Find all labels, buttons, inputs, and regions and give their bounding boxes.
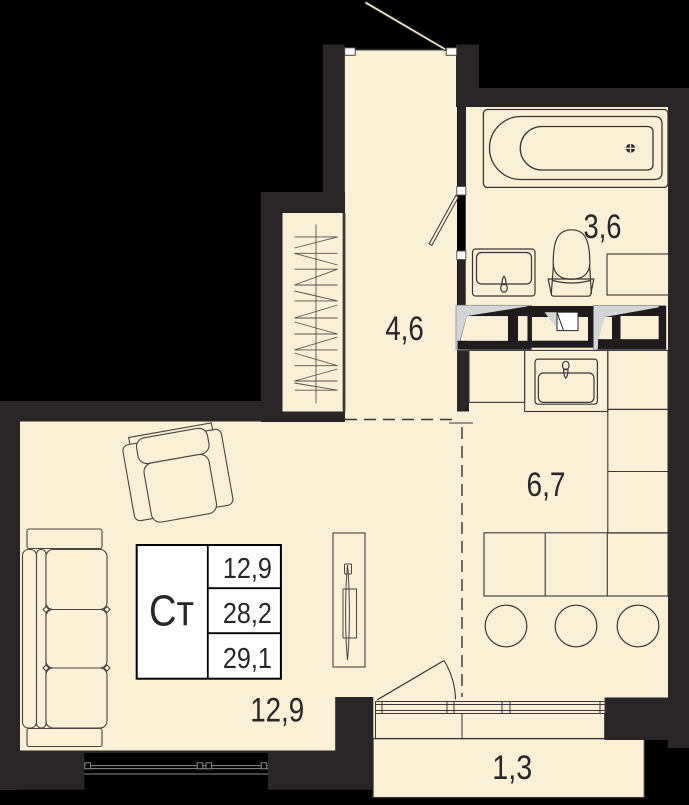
svg-text:6,7: 6,7 [527, 466, 566, 504]
svg-text:12,9: 12,9 [223, 553, 272, 585]
svg-text:1,3: 1,3 [492, 749, 532, 787]
svg-text:3,6: 3,6 [584, 208, 622, 246]
svg-text:Ст: Ст [149, 587, 194, 636]
svg-text:4,6: 4,6 [385, 310, 424, 348]
svg-text:12,9: 12,9 [250, 692, 304, 730]
svg-text:29,1: 29,1 [223, 643, 272, 675]
svg-text:28,2: 28,2 [223, 598, 272, 630]
